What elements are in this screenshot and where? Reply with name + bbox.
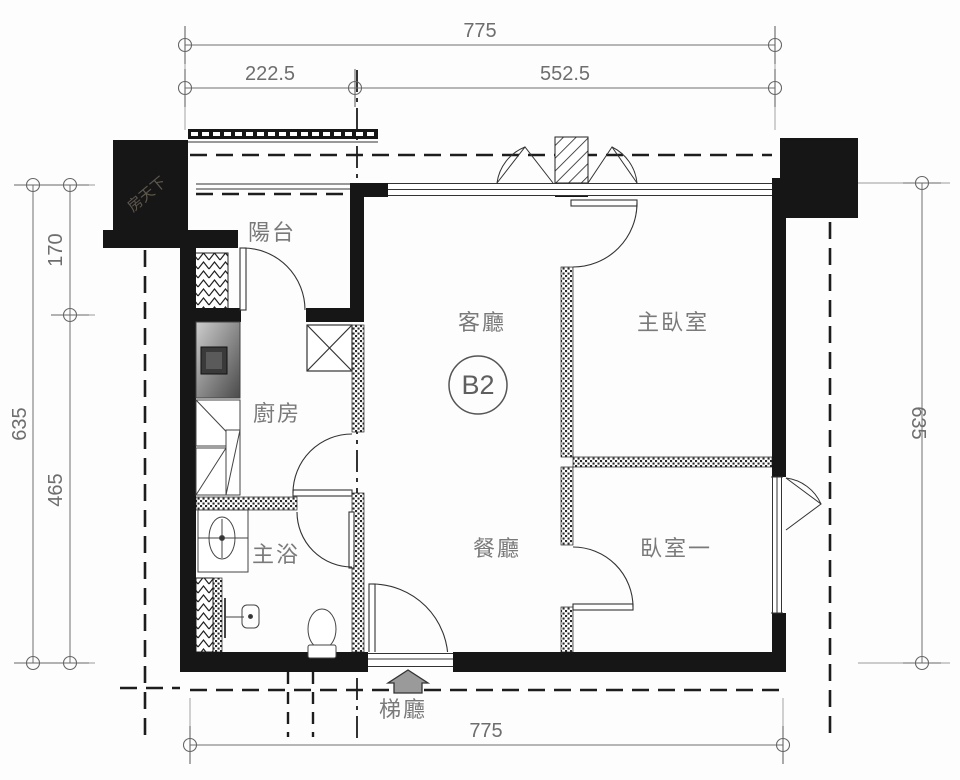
- label-stair-hall: 梯廳: [379, 697, 427, 722]
- shower-floor-area: [196, 578, 213, 652]
- kitchen-bath-partition: [196, 497, 297, 510]
- wall-left: [180, 247, 196, 672]
- wall-bottom-left: [196, 652, 368, 672]
- dining-bedroom1-partition-upper: [561, 467, 573, 545]
- label-master-bath: 主浴: [252, 542, 300, 567]
- label-bedroom-one: 臥室一: [640, 536, 712, 561]
- kitchen-partition-upper: [352, 325, 364, 432]
- wall-right-upper: [772, 218, 786, 477]
- balcony-washer-area: [192, 253, 228, 310]
- column-x-box: [307, 325, 352, 371]
- label-master-bedroom: 主臥室: [637, 310, 709, 335]
- wall-topleft-bar: [103, 230, 238, 248]
- kitchen-door-arc: [293, 434, 352, 493]
- bath-door-leaf: [349, 512, 354, 568]
- wall-topright-leg: [772, 178, 786, 218]
- kitchen-door-leaf: [293, 490, 352, 496]
- dim-bottom-overall: 775: [469, 720, 502, 742]
- master-bedroom-door-leaf: [571, 200, 637, 206]
- master-bedroom-door-arc: [573, 203, 637, 267]
- floor-plan-svg: 775 222.5 552.5 635 170 465 635 775 陽台 客…: [0, 0, 960, 780]
- stove-inner: [206, 352, 222, 369]
- balcony-door-leaf: [240, 248, 246, 310]
- shower-head-dot: [249, 615, 253, 619]
- doors: [240, 200, 637, 668]
- sink-drain: [220, 536, 225, 541]
- entrance-door-arc: [372, 584, 448, 660]
- hatched-elements: [192, 137, 588, 652]
- wall-balcony-bottom-left: [196, 308, 241, 322]
- unit-badge-text: B2: [461, 370, 494, 400]
- label-balcony: 陽台: [248, 220, 296, 245]
- wall-balcony-divider: [350, 183, 364, 322]
- toilet-bowl: [308, 609, 336, 649]
- dim-top-seg-right: 552.5: [540, 63, 590, 85]
- toilet-tank: [308, 645, 336, 658]
- kitchen-fixtures: [196, 322, 240, 495]
- entrance-door-leaf: [369, 584, 375, 660]
- label-dining-room: 餐廳: [473, 536, 521, 561]
- dim-left-seg-bottom: 465: [45, 473, 67, 506]
- wall-balcony-bottom-right: [306, 308, 364, 322]
- entrance-arrow-icon: [388, 670, 428, 693]
- bedroom-one-door-arc: [573, 547, 633, 607]
- side-casement-triangle: [786, 478, 821, 530]
- shower-partition: [213, 578, 222, 652]
- dim-top-overall: 775: [463, 20, 496, 42]
- casement-window-right: [588, 147, 637, 183]
- bath-door-arc: [297, 512, 352, 567]
- dining-bedroom1-partition-lower: [561, 607, 573, 652]
- masterbed-bedroom1-partition: [573, 457, 772, 467]
- floor-plan-page: 775 222.5 552.5 635 170 465 635 775 陽台 客…: [0, 0, 960, 780]
- living-masterbed-partition: [561, 267, 573, 457]
- dim-left-overall: 635: [9, 407, 31, 440]
- sink-counter: [198, 510, 248, 572]
- dim-left-seg-top: 170: [45, 233, 67, 266]
- unit-badge: B2: [449, 356, 507, 414]
- casement-window-left: [497, 147, 553, 183]
- wall-bottom-right: [453, 652, 786, 672]
- pipe-shaft-column: [555, 137, 588, 183]
- balcony-door-arc: [243, 248, 305, 310]
- wall-right-lower: [772, 613, 786, 672]
- bedroom-one-door-leaf: [573, 604, 633, 610]
- label-kitchen: 廚房: [253, 401, 301, 426]
- balcony-railing: [188, 129, 378, 142]
- wall-window-cap-left: [364, 183, 388, 197]
- dim-right-overall: 635: [907, 406, 929, 439]
- label-living-room: 客廳: [458, 310, 506, 335]
- wall-topright-block: [780, 138, 858, 218]
- dim-top-seg-left: 222.5: [245, 63, 295, 85]
- entrance-threshold: [368, 652, 453, 668]
